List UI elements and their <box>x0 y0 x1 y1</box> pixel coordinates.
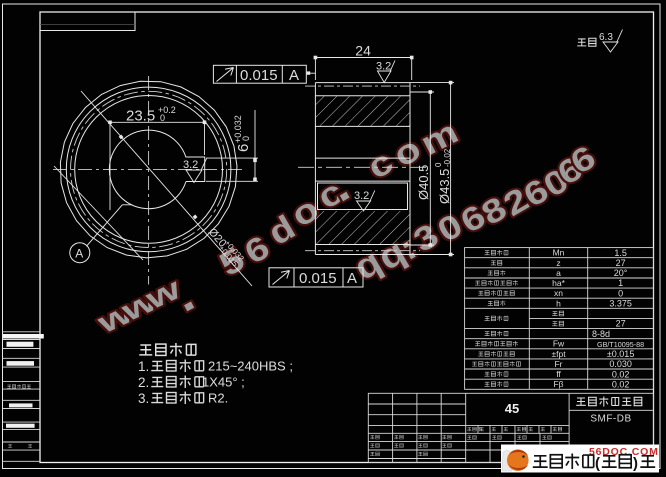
svg-text:Fβ: Fβ <box>553 379 563 389</box>
svg-text:0: 0 <box>618 288 623 298</box>
svg-text:0.02: 0.02 <box>612 369 630 379</box>
svg-text:SMF-DB: SMF-DB <box>590 414 631 425</box>
svg-text:3.: 3. <box>138 391 149 406</box>
svg-text:Mn: Mn <box>553 248 565 258</box>
svg-text:8-8d: 8-8d <box>592 329 610 339</box>
svg-text:27: 27 <box>616 258 626 268</box>
svg-text:0: 0 <box>241 136 251 141</box>
svg-text:xn: xn <box>554 288 563 298</box>
svg-text:0.030: 0.030 <box>609 359 632 369</box>
svg-text:GB/T10095-88: GB/T10095-88 <box>597 340 644 349</box>
svg-text:0.015: 0.015 <box>299 270 337 287</box>
svg-text:A: A <box>347 270 357 287</box>
svg-text:1: 1 <box>618 278 623 288</box>
svg-text:Ø40.5: Ø40.5 <box>416 165 431 200</box>
svg-text:215~240HBS ;: 215~240HBS ; <box>208 359 293 374</box>
svg-text:23.5: 23.5 <box>126 108 155 125</box>
svg-text:1X45° ;: 1X45° ; <box>202 375 245 390</box>
svg-text:A: A <box>75 247 83 261</box>
svg-text:ff: ff <box>556 369 561 379</box>
svg-text:Fw: Fw <box>553 339 565 349</box>
svg-text:0.02: 0.02 <box>612 379 630 389</box>
svg-text:Ø43.5: Ø43.5 <box>437 169 452 204</box>
svg-text:-0.02: -0.02 <box>443 148 452 167</box>
svg-text:Fr: Fr <box>554 359 562 369</box>
svg-text:0: 0 <box>434 162 443 167</box>
svg-text:ha*: ha* <box>552 278 565 288</box>
svg-text:1.: 1. <box>138 359 153 374</box>
svg-text:2.: 2. <box>138 375 149 390</box>
svg-text:1.5: 1.5 <box>614 248 627 258</box>
svg-text:(: ( <box>595 455 600 472</box>
svg-text:R2.: R2. <box>208 391 228 406</box>
svg-text:0: 0 <box>160 113 165 123</box>
svg-text:3.2: 3.2 <box>183 159 198 171</box>
svg-text:): ) <box>633 455 638 472</box>
svg-text:24: 24 <box>355 43 371 59</box>
svg-text:±fpt: ±fpt <box>551 349 566 359</box>
svg-text:27: 27 <box>616 319 626 329</box>
svg-text:0.015: 0.015 <box>240 67 278 84</box>
svg-text:6: 6 <box>235 144 252 152</box>
svg-text:A: A <box>289 67 299 84</box>
svg-text:z: z <box>556 258 560 268</box>
svg-text:±0.015: ±0.015 <box>607 349 634 359</box>
svg-text:3.375: 3.375 <box>609 299 632 309</box>
svg-text:3.2: 3.2 <box>354 190 369 202</box>
svg-text:45: 45 <box>505 401 519 416</box>
svg-text:6.3: 6.3 <box>599 32 613 43</box>
svg-text:20°: 20° <box>614 268 628 278</box>
svg-text:h: h <box>556 298 561 308</box>
svg-text:a: a <box>556 268 561 278</box>
